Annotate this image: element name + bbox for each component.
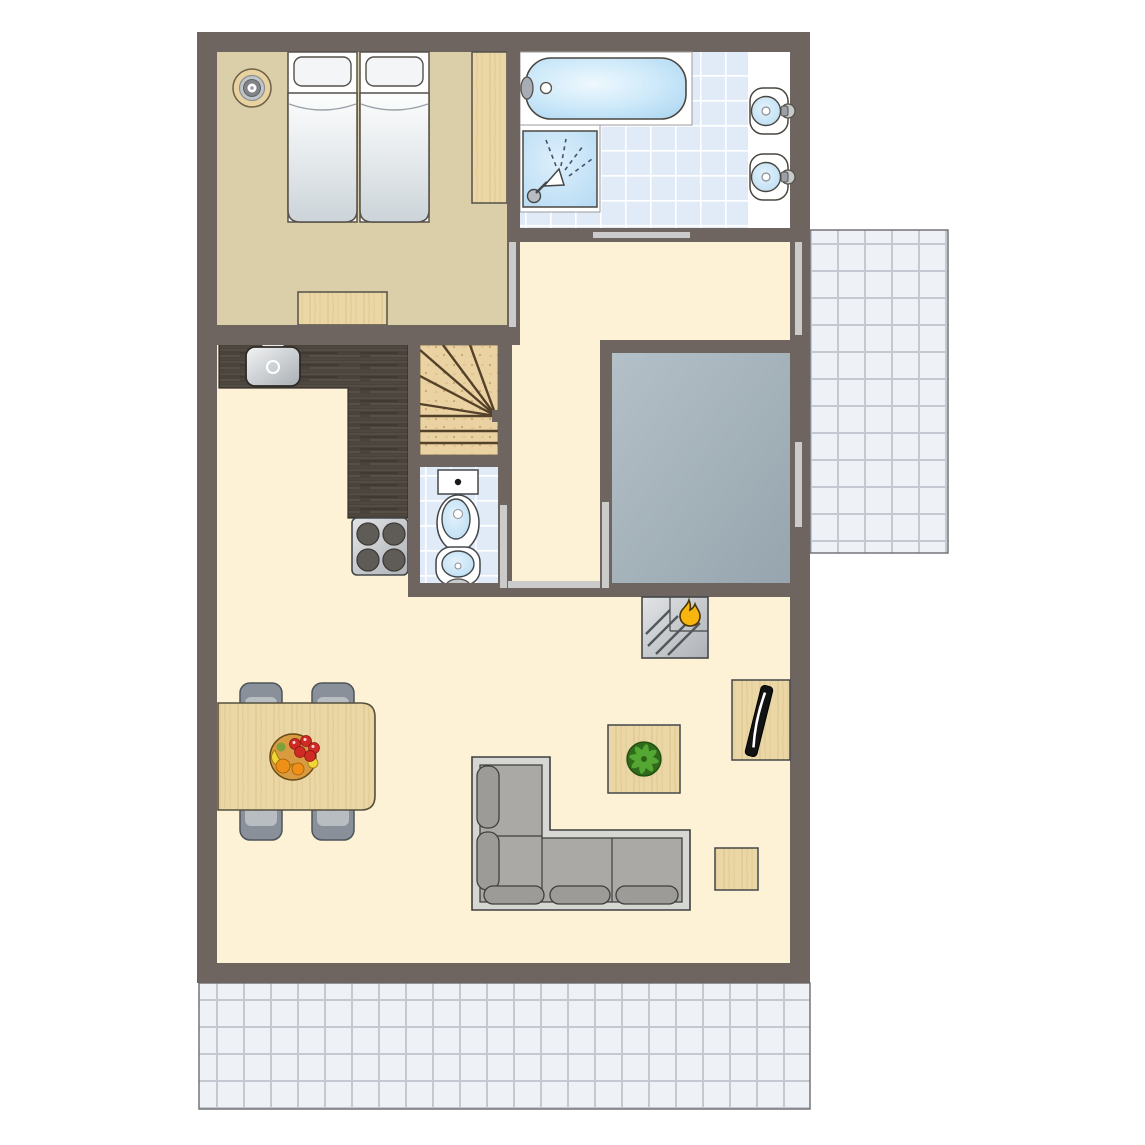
terrace-bottom xyxy=(199,983,810,1109)
fireplace xyxy=(642,597,708,658)
burner xyxy=(357,523,379,545)
bath-faucet-icon xyxy=(521,77,533,99)
burner xyxy=(383,523,405,545)
pillow xyxy=(366,57,423,86)
side-table xyxy=(715,848,758,890)
hall-terrace-door xyxy=(795,242,802,335)
duvet xyxy=(288,93,357,222)
wall-stairs-wc-divider xyxy=(408,455,512,467)
plant-table xyxy=(608,725,680,793)
bedroom-door xyxy=(509,242,516,327)
wardrobe xyxy=(472,52,507,203)
toilet xyxy=(437,470,479,551)
tv-cabinet xyxy=(732,680,790,760)
living-room-passage xyxy=(508,581,600,588)
winder-staircase xyxy=(420,345,504,455)
floor-plan-page xyxy=(0,0,1145,1145)
bath-drain-icon xyxy=(541,83,552,94)
wall-storage-top xyxy=(600,340,810,353)
washbasin-counter xyxy=(748,52,790,228)
burner xyxy=(357,549,379,571)
burner xyxy=(383,549,405,571)
bathroom-door xyxy=(593,232,690,238)
plant xyxy=(627,742,661,776)
duvet xyxy=(360,93,429,222)
pillow xyxy=(294,57,351,86)
bedside-lamp xyxy=(233,69,271,107)
twin-bed-left xyxy=(288,52,357,222)
terrace-right xyxy=(810,230,948,553)
floor-plan-canvas xyxy=(0,0,1145,1145)
wc xyxy=(436,470,480,593)
storage-room-window xyxy=(795,442,802,527)
wc-door xyxy=(500,505,507,588)
storage-room-floor xyxy=(612,353,790,583)
storage-room-door xyxy=(602,502,609,588)
stove xyxy=(352,518,408,575)
wall-bedroom-bottom xyxy=(197,325,520,345)
dresser xyxy=(298,292,387,325)
twin-bed-right xyxy=(360,52,429,222)
